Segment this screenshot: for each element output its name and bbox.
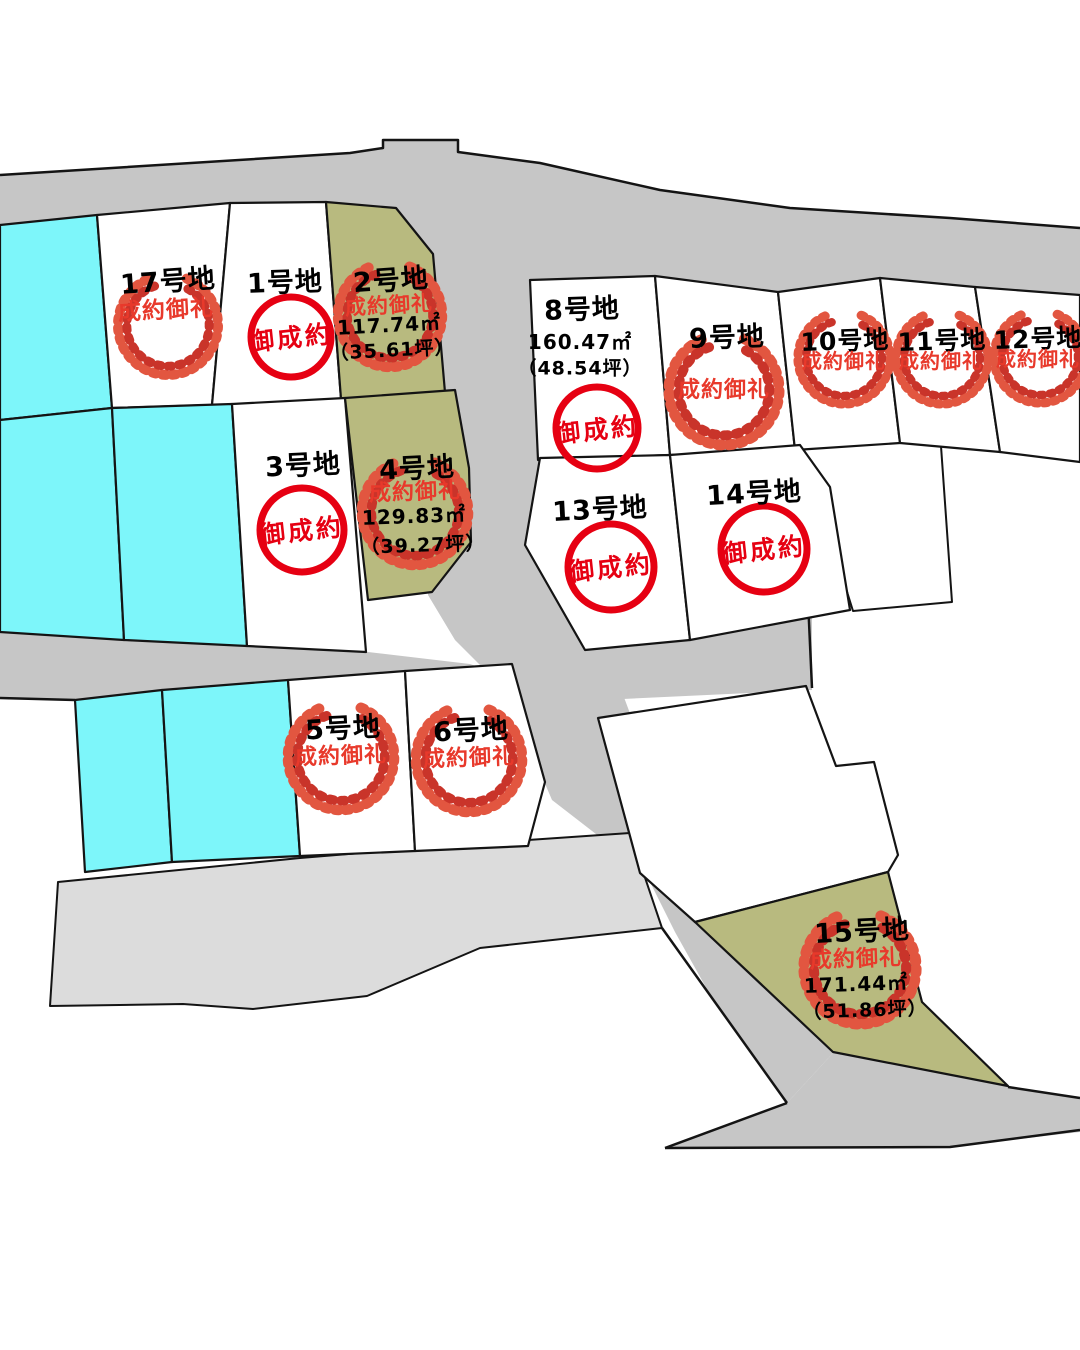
lot14-label: 14号地 xyxy=(706,478,803,510)
lot17-label: 17号地 xyxy=(119,265,216,299)
lot6-status: 成約御礼 xyxy=(423,746,516,771)
lot-map-canvas xyxy=(0,0,1080,1350)
lot9-status: 成約御礼 xyxy=(678,380,770,402)
lot10-status: 成約御礼 xyxy=(802,351,886,371)
parcel-cyan-5 xyxy=(162,680,300,862)
lot1-label: 1号地 xyxy=(247,268,324,298)
road-bottom-arrow xyxy=(665,1053,1080,1148)
lot8-label: 8号地 xyxy=(544,295,621,325)
lot5-status: 成約御礼 xyxy=(295,744,388,769)
lot15-area-tsubo: （51.86坪） xyxy=(802,999,928,1022)
lot4-area-tsubo: （39.27坪） xyxy=(360,534,486,557)
parcel-cyan-2 xyxy=(0,408,124,640)
lot17-status: 成約御礼 xyxy=(117,297,214,325)
lot12-status: 成約御礼 xyxy=(996,349,1080,369)
lot3-label: 3号地 xyxy=(264,451,341,482)
lot15-area-m2: 171.44㎡ xyxy=(804,972,909,996)
parcel-cyan-1 xyxy=(0,215,112,420)
parcel-cyan-4 xyxy=(75,690,172,872)
lot8-area-m2: 160.47㎡ xyxy=(528,332,632,352)
lot4-area-m2: 129.83㎡ xyxy=(362,504,467,528)
lot2-area-m2: 117.74㎡ xyxy=(336,312,441,337)
lot15-status: 成約御礼 xyxy=(810,947,903,972)
lot11-status: 成約御礼 xyxy=(899,351,983,371)
lot6-label: 6号地 xyxy=(432,716,509,747)
lot5-label: 5号地 xyxy=(304,714,381,745)
lot8-area-tsubo: （48.54坪） xyxy=(517,360,642,379)
lot9-label: 9号地 xyxy=(689,323,766,353)
parcel-cyan-3 xyxy=(112,404,247,646)
lot15-label: 15号地 xyxy=(814,916,911,948)
lot13-label: 13号地 xyxy=(552,494,649,526)
lot-map: 17号地 成約御礼 1号地 御成約 2号地 成約御礼 117.74㎡ （35.6… xyxy=(0,0,1080,1350)
